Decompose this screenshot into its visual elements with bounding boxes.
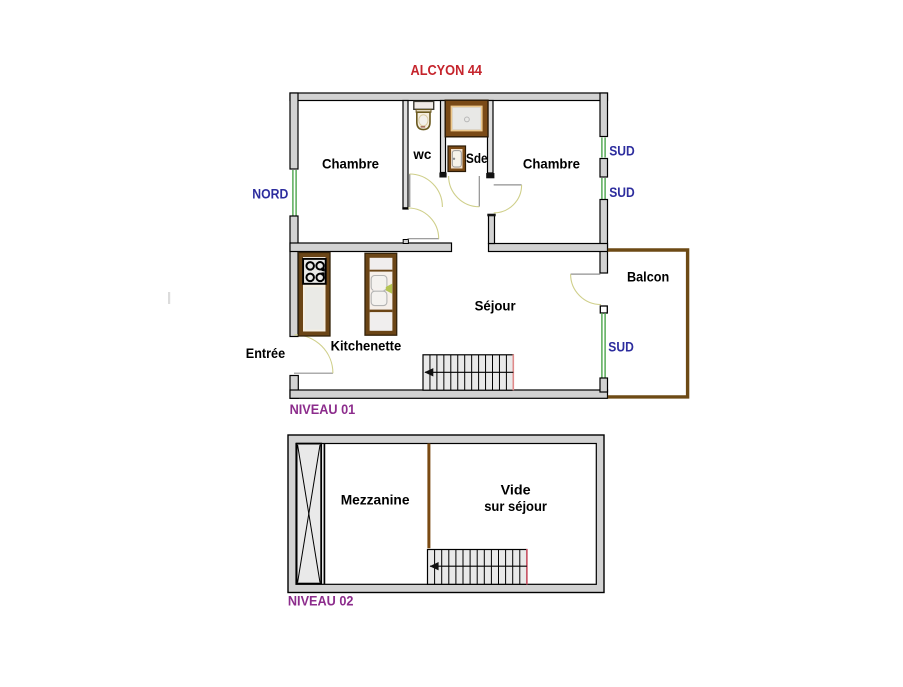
- svg-text:Balcon: Balcon: [627, 270, 669, 286]
- svg-text:Séjour: Séjour: [475, 299, 516, 315]
- svg-text:Chambre: Chambre: [523, 156, 580, 172]
- svg-text:Entrée: Entrée: [246, 346, 285, 362]
- svg-text:SUD: SUD: [609, 143, 635, 159]
- svg-text:Kitchenette: Kitchenette: [331, 339, 402, 355]
- svg-text:SUD: SUD: [608, 339, 634, 355]
- svg-text:ALCYON 44: ALCYON 44: [411, 63, 483, 79]
- svg-text:Vide: Vide: [501, 482, 531, 498]
- svg-text:NIVEAU 01: NIVEAU 01: [290, 402, 356, 418]
- svg-text:Sde: Sde: [466, 151, 488, 167]
- svg-text:NIVEAU 02: NIVEAU 02: [288, 594, 354, 610]
- svg-text:Mezzanine: Mezzanine: [341, 493, 410, 509]
- svg-text:Chambre: Chambre: [322, 156, 379, 172]
- svg-text:NORD: NORD: [252, 187, 288, 203]
- svg-text:SUD: SUD: [609, 185, 635, 201]
- svg-text:wc: wc: [412, 147, 431, 163]
- svg-text:sur séjour: sur séjour: [484, 499, 547, 515]
